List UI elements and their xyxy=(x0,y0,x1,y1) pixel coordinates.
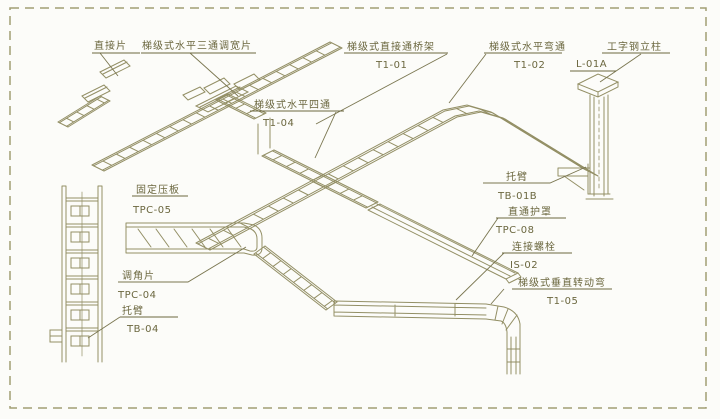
code-i-beam-column: L-01A xyxy=(576,59,607,70)
cable-tray-diagram: 直接片 梯级式水平三通调宽片 梯级式直接通桥架 T1-01 梯级式水平弯通 T1… xyxy=(0,0,720,419)
column-base xyxy=(586,194,613,199)
ladder-end-cap xyxy=(326,302,337,310)
ladder-rung xyxy=(87,106,94,109)
ladder-rung xyxy=(340,189,348,193)
vertical-rails xyxy=(507,336,520,374)
stub-tray-left xyxy=(58,96,110,127)
ladder-rung xyxy=(290,65,298,69)
ladder-rung xyxy=(457,109,467,114)
code-fixing-plate: TPC-05 xyxy=(132,205,171,216)
ladder-end-cap xyxy=(100,96,110,101)
cover-lines xyxy=(368,204,518,279)
code-connecting-bolt: IS-02 xyxy=(510,260,538,271)
code-horizontal-cross: T1-04 xyxy=(262,118,294,129)
ladder-rung xyxy=(547,146,557,151)
ladder-rung xyxy=(284,198,294,203)
ladder-rung xyxy=(418,126,428,131)
leader-line xyxy=(472,218,498,256)
ladder-rung xyxy=(273,156,281,160)
adjuster-plate-piece xyxy=(234,74,260,90)
ladder-rung xyxy=(67,118,74,121)
ladder-foot-bracket xyxy=(50,330,62,342)
code-bracket-arm-right: TB-01B xyxy=(497,191,537,202)
ladder-rung xyxy=(532,137,542,142)
main-tray xyxy=(196,105,598,250)
connector-plate-piece xyxy=(100,60,130,78)
label-horizontal-bend: 梯级式水平弯通 xyxy=(489,40,566,53)
ladder-rung xyxy=(276,72,284,76)
label-straight-bridge: 梯级式直接通桥架 xyxy=(347,40,435,53)
ladder-rung xyxy=(283,269,290,274)
vertical-ladder xyxy=(50,186,102,362)
ladder-rung xyxy=(183,120,191,124)
ladder-rung xyxy=(236,104,244,108)
code-bracket-arm-left: TB-04 xyxy=(126,324,159,335)
ladder-rung xyxy=(143,140,151,144)
cover-tray xyxy=(368,204,521,283)
code-straight-cover: TPC-08 xyxy=(495,225,534,236)
incline-tray xyxy=(254,246,337,310)
label-connecting-bolt: 连接螺栓 xyxy=(512,240,556,253)
ladder-rung xyxy=(157,134,165,138)
ladder-rung xyxy=(103,161,111,165)
label-bracket-arm-right: 托臂 xyxy=(506,170,528,183)
ladder-rung xyxy=(316,51,324,55)
ladder-rung xyxy=(294,277,301,282)
ladder-rail xyxy=(265,246,337,302)
tray-rails xyxy=(334,301,486,319)
ladder-end-cap xyxy=(92,165,104,171)
ladder-end-cap xyxy=(262,150,274,156)
ladder-rung xyxy=(269,206,279,211)
ladder-rung xyxy=(433,118,443,123)
code-horizontal-bend: T1-02 xyxy=(513,60,545,71)
ladder-rung xyxy=(354,196,362,200)
ladder-rung xyxy=(117,154,125,158)
column-top-flange xyxy=(578,74,618,97)
column-bracket-arm xyxy=(558,164,590,194)
ladder-rail xyxy=(256,253,328,309)
label-bracket-arm-left: 托臂 xyxy=(122,304,144,317)
code-angle-adjuster: TPC-04 xyxy=(117,290,156,301)
ladder-rung xyxy=(250,85,258,89)
tray-rails xyxy=(126,223,244,253)
ladder-rung xyxy=(97,99,104,102)
ladder-rung xyxy=(518,128,528,133)
code-straight-bridge: T1-01 xyxy=(375,60,407,71)
i-beam-column xyxy=(558,74,618,199)
ladder-rung xyxy=(263,78,271,82)
adjuster-plate-piece xyxy=(183,87,205,100)
code-vertical-rotating-bend: T1-05 xyxy=(546,296,578,307)
label-fixing-plate: 固定压板 xyxy=(136,183,180,196)
label-i-beam-column: 工字钢立柱 xyxy=(607,40,662,53)
ladder-rung xyxy=(287,162,295,166)
ladder-rung xyxy=(130,147,138,151)
ladder-rung xyxy=(299,190,309,195)
leader-line xyxy=(449,54,486,103)
leader-line xyxy=(456,253,504,300)
ladder-rung xyxy=(273,261,280,266)
label-angle-adjuster: 调角片 xyxy=(122,269,155,282)
label-tee-width-adjuster: 梯级式水平三通调宽片 xyxy=(142,39,252,52)
adjuster-plate-piece xyxy=(204,78,230,94)
ladder-rung xyxy=(303,58,311,62)
label-vertical-rotating-bend: 梯级式垂直转动弯 xyxy=(518,276,606,289)
ladder-rung xyxy=(77,112,84,115)
labels: 直接片 梯级式水平三通调宽片 梯级式直接通桥架 T1-01 梯级式水平弯通 T1… xyxy=(94,39,662,335)
label-connector-plate: 直接片 xyxy=(94,39,127,52)
ladder-rail xyxy=(263,247,335,303)
ladder-rung xyxy=(300,169,308,173)
label-straight-cover: 直通护罩 xyxy=(508,205,552,218)
ladder-rung xyxy=(170,127,178,131)
ladder-rung xyxy=(304,285,311,290)
ladder-rung xyxy=(503,119,513,124)
ladder-end-cap xyxy=(584,169,598,176)
ladder-rung xyxy=(314,293,321,298)
ladder-rail xyxy=(262,156,366,208)
ladder-rung xyxy=(388,142,398,147)
ladder-end-cap xyxy=(330,42,342,48)
ladder-rail xyxy=(264,155,368,207)
ladder-rung xyxy=(403,134,413,139)
ladder-rung xyxy=(373,150,383,155)
leader-line xyxy=(190,53,238,96)
ladder-rail xyxy=(254,254,326,310)
leader-line xyxy=(491,289,504,304)
connector-plates xyxy=(82,60,260,102)
ladder-rung xyxy=(325,301,332,306)
ladder-rung xyxy=(263,253,270,258)
ladder-rung xyxy=(343,166,353,171)
ladder-end-cap xyxy=(58,122,68,127)
ladder-rung xyxy=(254,214,264,219)
cable-tray-diagram-page: 直接片 梯级式水平三通调宽片 梯级式直接通桥架 T1-01 梯级式水平弯通 T1… xyxy=(0,0,720,419)
label-horizontal-cross: 梯级式水平四通 xyxy=(254,98,331,111)
ladder-rung xyxy=(561,155,571,160)
ladder-rung xyxy=(197,113,205,117)
ladder-rung xyxy=(358,158,368,163)
horizontal-tray-left xyxy=(126,223,262,255)
lower-tray xyxy=(334,301,486,319)
vertical-bend-tray xyxy=(486,304,520,374)
